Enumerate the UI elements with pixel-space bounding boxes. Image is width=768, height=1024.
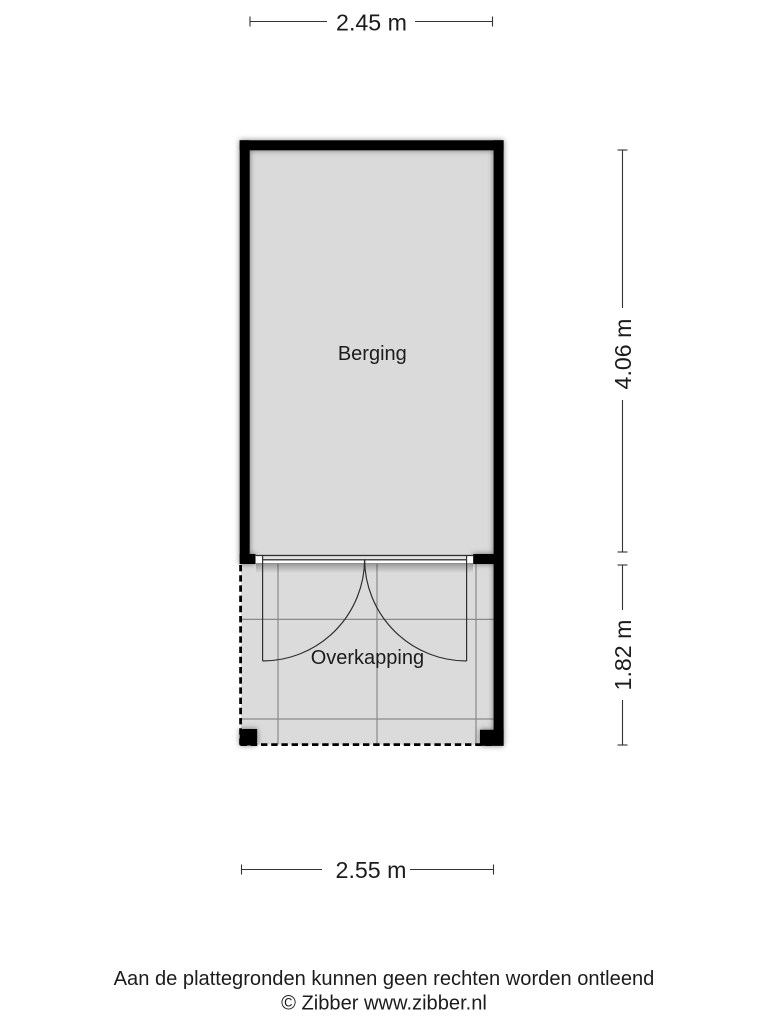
svg-text:2.45 m: 2.45 m <box>336 9 407 35</box>
svg-text:Aan de plattegronden kunnen ge: Aan de plattegronden kunnen geen rechten… <box>114 968 655 990</box>
svg-text:2.55 m: 2.55 m <box>336 857 407 883</box>
svg-text:Overkapping: Overkapping <box>311 647 424 669</box>
svg-text:4.06 m: 4.06 m <box>610 319 636 390</box>
svg-text:Berging: Berging <box>338 343 407 365</box>
svg-text:© Zibber www.zibber.nl: © Zibber www.zibber.nl <box>281 993 487 1015</box>
svg-text:1.82 m: 1.82 m <box>610 620 636 691</box>
